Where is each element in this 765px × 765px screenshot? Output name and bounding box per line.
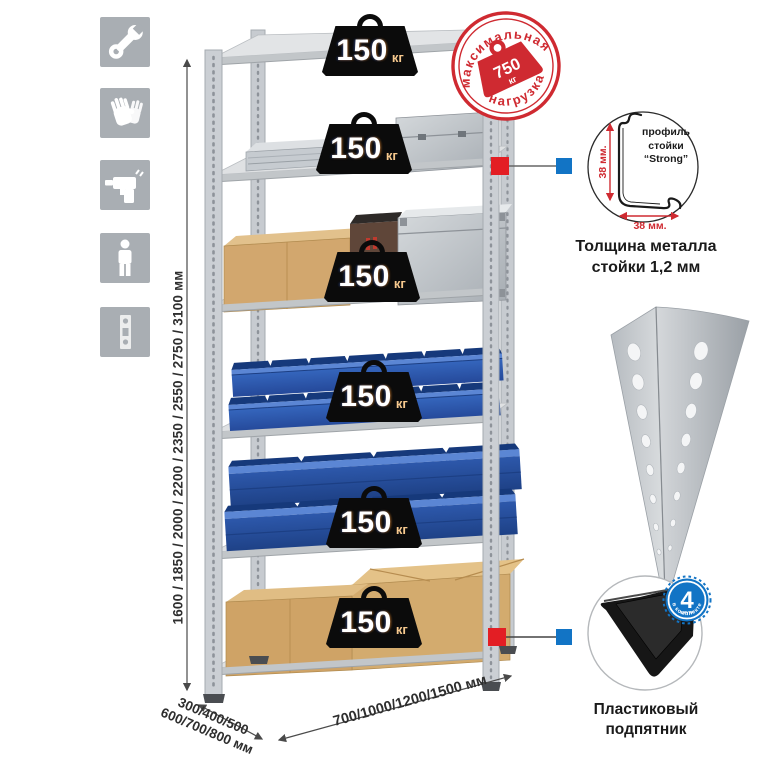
load-unit: кг bbox=[396, 622, 408, 637]
profile-dim-horizontal: 38 мм. bbox=[633, 220, 666, 232]
plastic-foot-caption: Пластиковый подпятник bbox=[571, 700, 721, 740]
load-value: 150 bbox=[340, 506, 392, 540]
callout-bottom bbox=[488, 628, 572, 646]
wrench-icon bbox=[100, 17, 150, 67]
profile-label-line2: стойки bbox=[635, 140, 697, 154]
foot-caption-line2: подпятник bbox=[571, 720, 721, 740]
thickness-caption-line2: стойки 1,2 мм bbox=[571, 258, 721, 279]
shelf2-load-badge: 150кг bbox=[316, 112, 412, 178]
plastic-foot-detail: 4 штуки в комплекте bbox=[588, 576, 711, 690]
perforated-post-icon bbox=[100, 307, 150, 357]
foot-back-left bbox=[249, 656, 269, 664]
load-value: 150 bbox=[340, 380, 392, 414]
profile-label-line3: “Strong” bbox=[635, 153, 697, 167]
shelf5-load-badge: 150кг bbox=[326, 486, 422, 552]
load-unit: кг bbox=[392, 50, 404, 65]
callout-blue-square-top bbox=[556, 158, 572, 174]
load-unit: кг bbox=[396, 396, 408, 411]
corner-post-detail bbox=[611, 307, 749, 597]
shelf1-load-badge: 150кг bbox=[322, 14, 418, 80]
load-value: 150 bbox=[338, 260, 390, 294]
shelving-infographic: 38 мм. 38 мм. bbox=[0, 0, 765, 765]
gloves-icon bbox=[100, 88, 150, 138]
drill-icon bbox=[100, 160, 150, 210]
foot-caption-line1: Пластиковый bbox=[571, 700, 721, 720]
thickness-caption-line1: Толщина металла bbox=[571, 237, 721, 258]
foot-front-left bbox=[203, 694, 225, 703]
profile-label: профиль стойки “Strong” bbox=[635, 126, 697, 167]
foot-back-right bbox=[499, 646, 517, 654]
profile-dim-vertical: 38 мм. bbox=[597, 145, 609, 178]
shelf4-load-badge: 150кг bbox=[326, 360, 422, 426]
shelf3-load-badge: 150кг bbox=[324, 240, 420, 306]
height-dimension-label: 1600 / 1850 / 2000 / 2200 / 2350 / 2550 … bbox=[171, 198, 186, 698]
callout-top bbox=[491, 157, 572, 175]
load-value: 150 bbox=[340, 606, 392, 640]
load-value: 150 bbox=[330, 132, 382, 166]
load-value: 150 bbox=[336, 34, 388, 68]
load-unit: кг bbox=[394, 276, 406, 291]
load-unit: кг bbox=[396, 522, 408, 537]
callout-red-square-bottom bbox=[488, 628, 506, 646]
callout-red-square-top bbox=[491, 157, 509, 175]
load-unit: кг bbox=[386, 148, 398, 163]
profile-label-line1: профиль bbox=[635, 126, 697, 140]
metal-thickness-caption: Толщина металла стойки 1,2 мм bbox=[571, 237, 721, 279]
callout-blue-square-bottom bbox=[556, 629, 572, 645]
shelf6-load-badge: 150кг bbox=[326, 586, 422, 652]
person-icon bbox=[100, 233, 150, 283]
